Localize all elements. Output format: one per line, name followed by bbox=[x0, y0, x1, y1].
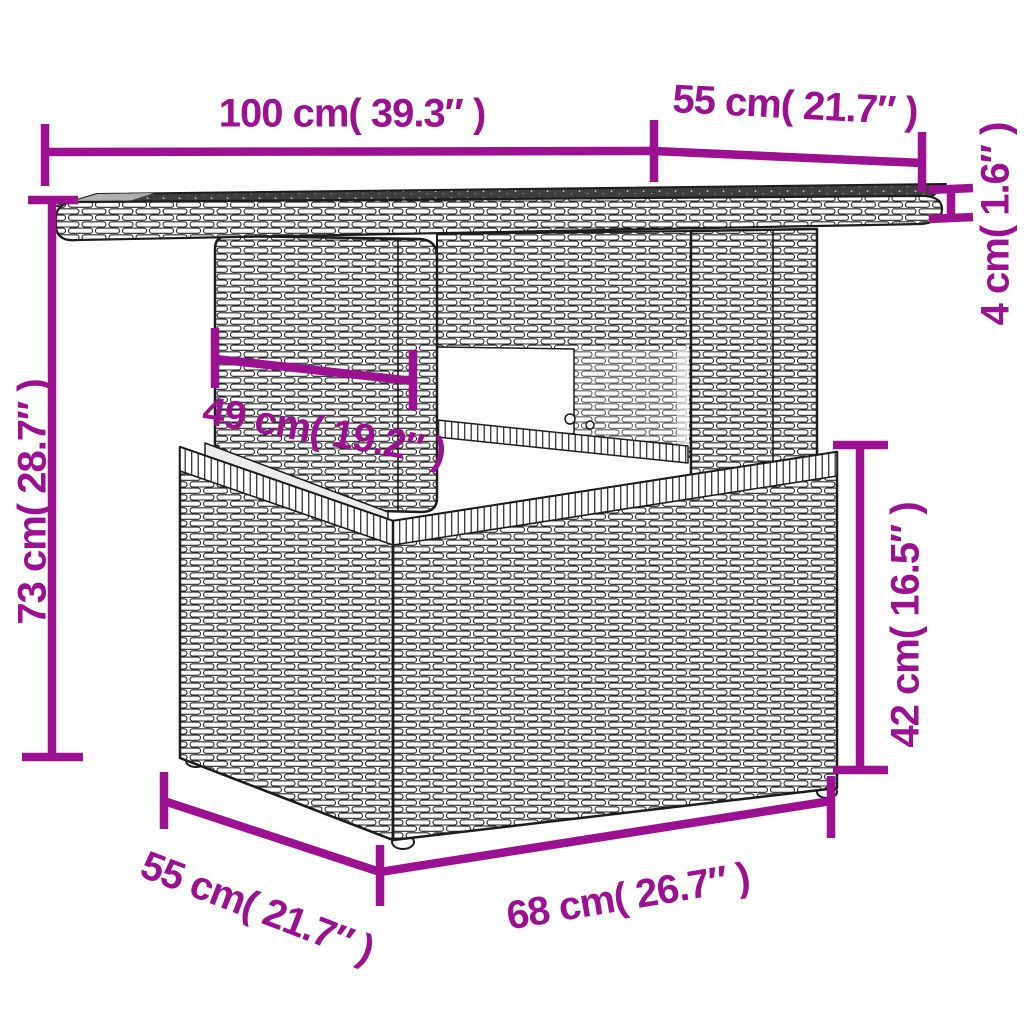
dim-label-tabletop-thickness: 4 cm( 1.6″ ) bbox=[974, 123, 1019, 326]
rattan-table-drawing bbox=[56, 184, 946, 849]
dim-line-tabletop-depth bbox=[654, 132, 922, 192]
dim-line-base-height bbox=[833, 445, 888, 770]
base-box bbox=[180, 447, 837, 840]
pedestal-window-opening bbox=[437, 347, 574, 434]
dim-label-total-height: 73 cm( 28.7″ ) bbox=[11, 379, 56, 624]
pedestal-right-panel bbox=[691, 229, 817, 482]
fitting-screw bbox=[586, 421, 594, 429]
dim-label-tabletop-width: 100 cm( 39.3″ ) bbox=[219, 92, 486, 137]
fitting-screw bbox=[565, 414, 575, 424]
diagram-canvas: 100 cm( 39.3″ ) 55 cm( 21.7″ ) 4 cm( 1.6… bbox=[0, 0, 1024, 1024]
dim-label-base-height: 42 cm( 16.5″ ) bbox=[884, 502, 929, 747]
